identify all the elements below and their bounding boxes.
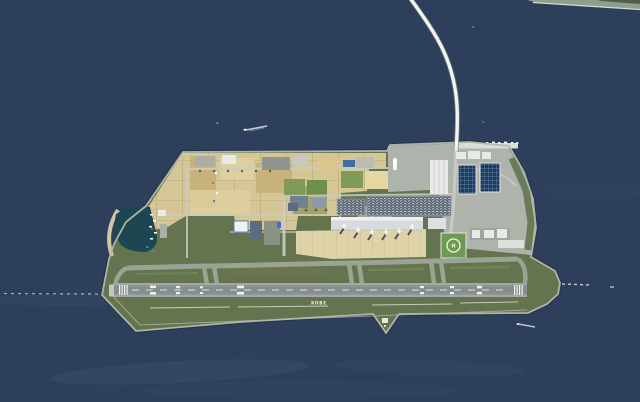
threshold-bar <box>522 285 523 295</box>
boat <box>154 232 157 234</box>
touchdown-mark <box>150 292 156 295</box>
boat-speck <box>217 123 219 124</box>
touchdown-mark <box>200 292 203 294</box>
boat <box>149 226 152 228</box>
touchdown-mark <box>420 292 424 294</box>
boat <box>492 142 495 144</box>
marina-building <box>158 210 166 216</box>
aiming-point-mark <box>237 292 244 295</box>
shed-white <box>484 230 494 238</box>
marina-building <box>160 224 167 238</box>
parking-lot-west <box>337 199 365 215</box>
touchdown-mark <box>150 286 156 289</box>
threshold-bar <box>119 285 120 295</box>
taxiway-connector <box>441 261 444 283</box>
boat-hull <box>517 323 520 325</box>
boat <box>516 142 519 143</box>
ground-marking-text: KOBE <box>311 301 327 306</box>
building-white-small <box>468 151 480 159</box>
speck <box>213 200 215 202</box>
terminal-annex <box>428 218 446 229</box>
runway-edge-line <box>114 296 527 297</box>
aiming-point-mark <box>237 286 244 289</box>
hedge <box>227 170 229 172</box>
taxiway-connector <box>431 261 434 283</box>
boat-speck <box>473 27 475 28</box>
warehouse-white <box>234 221 248 232</box>
boat-teal <box>146 246 149 248</box>
touchdown-mark <box>477 286 482 289</box>
boat <box>498 142 501 143</box>
boat <box>504 142 507 144</box>
threshold-bar <box>124 285 125 295</box>
warehouse-blue-gray <box>250 221 262 240</box>
solar-roof-building <box>458 165 476 194</box>
hedge <box>305 209 308 212</box>
building-blue-sign <box>343 160 355 167</box>
solar-roof-building <box>480 163 500 192</box>
building-white-small <box>482 152 491 159</box>
hedge <box>199 170 201 172</box>
building-blue-gray <box>312 198 326 208</box>
airport-island: H <box>102 142 560 333</box>
building-gray <box>356 157 374 168</box>
taxiway-connector <box>359 263 362 284</box>
touchdown-mark <box>450 286 454 288</box>
boat-speck <box>483 122 485 123</box>
taxiway-connector <box>214 266 217 285</box>
building-tan <box>318 158 340 171</box>
touchdown-mark <box>200 286 203 288</box>
taxiway-connector <box>204 266 207 285</box>
speck <box>215 172 217 174</box>
boat-hull <box>244 129 247 131</box>
building-gray <box>262 157 290 170</box>
boat <box>153 220 156 222</box>
building-gray <box>292 156 308 165</box>
parking-lot-main <box>367 196 451 216</box>
shed-white <box>497 229 507 238</box>
aerial-photo-stage: H <box>0 0 640 402</box>
boat-red <box>151 228 154 230</box>
threshold-bar <box>514 285 515 295</box>
runway <box>109 283 527 297</box>
taxiway-connector <box>349 263 352 284</box>
threshold-bar <box>122 285 123 295</box>
boat <box>150 214 153 216</box>
boat <box>150 238 153 240</box>
blue-accent <box>277 222 281 228</box>
touchdown-mark <box>477 292 482 295</box>
terminal-canopy <box>331 217 423 221</box>
touchdown-mark <box>176 292 180 294</box>
hedge <box>325 209 328 212</box>
hedge <box>241 170 243 172</box>
hedge <box>269 170 271 172</box>
green-field <box>341 171 363 188</box>
bright-sand-lot <box>365 171 390 189</box>
building-blue-gray <box>288 203 298 211</box>
shed-row <box>498 240 524 248</box>
sand-patch <box>190 190 250 214</box>
sea-streak <box>140 381 460 399</box>
mowing-stripe <box>136 273 198 274</box>
green-field <box>284 179 305 196</box>
speck <box>212 182 214 184</box>
touchdown-mark <box>176 286 180 288</box>
platform-structure <box>382 318 388 323</box>
building-gray <box>195 156 215 166</box>
boat-teal <box>152 250 155 252</box>
mowing-stripe <box>450 267 510 268</box>
parking-lots <box>337 196 451 216</box>
threshold-bar <box>519 285 520 295</box>
hedge <box>315 209 318 212</box>
building-white <box>222 155 236 164</box>
infield-olive-strip <box>228 268 328 276</box>
hedge <box>255 170 257 172</box>
white-tower-top <box>393 158 397 162</box>
touchdown-mark <box>420 286 424 288</box>
mowing-stripe <box>368 269 424 270</box>
hedge <box>213 170 215 172</box>
building-white-small <box>456 152 466 159</box>
helipad: H <box>441 233 466 258</box>
touchdown-mark <box>450 292 454 294</box>
boat <box>511 142 514 143</box>
platform-light <box>384 325 386 327</box>
speck <box>216 192 218 194</box>
threshold-bar <box>127 285 128 295</box>
shed-white <box>472 230 480 238</box>
aerial-photo: H <box>0 0 640 402</box>
white-tower <box>393 161 397 170</box>
apron <box>296 229 426 259</box>
helipad-letter: H <box>451 244 455 250</box>
green-field <box>307 180 327 196</box>
runway-edge-line <box>114 284 527 285</box>
threshold-bar <box>517 285 518 295</box>
